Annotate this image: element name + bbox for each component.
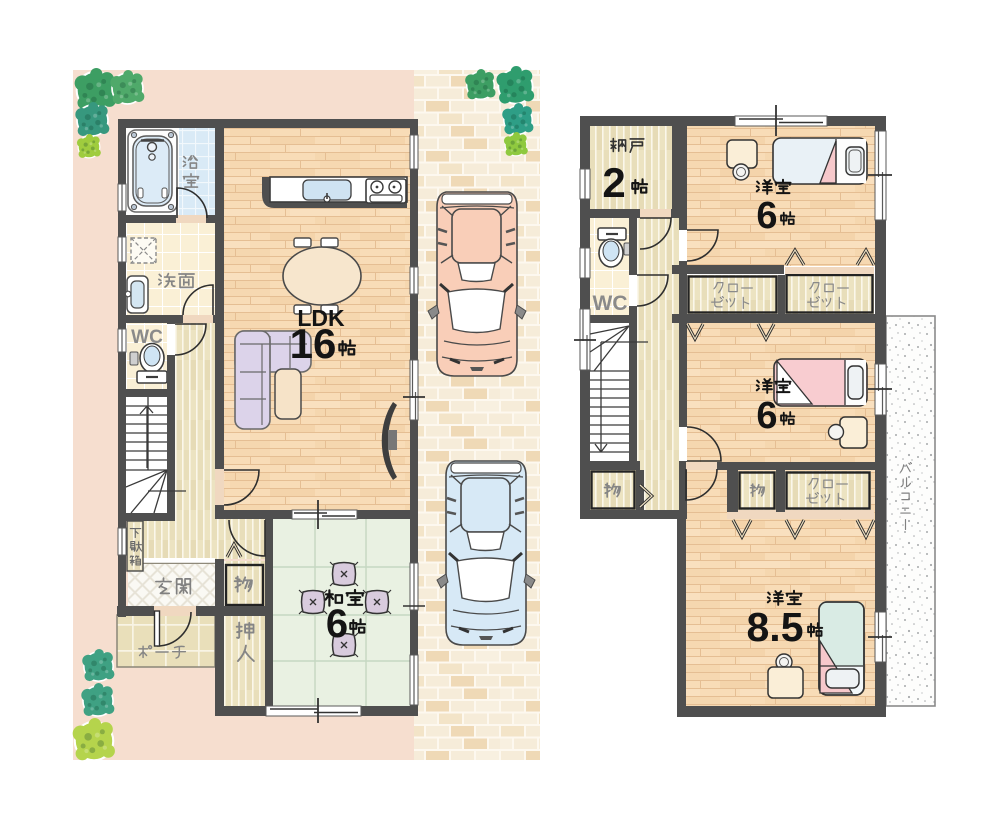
svg-text:6: 6 bbox=[326, 602, 348, 646]
svg-text:6: 6 bbox=[756, 395, 777, 437]
svg-text:2: 2 bbox=[602, 159, 625, 206]
svg-text:6: 6 bbox=[756, 195, 777, 237]
svg-text:WC: WC bbox=[593, 292, 628, 315]
svg-text:16: 16 bbox=[290, 320, 337, 367]
svg-text:8.5: 8.5 bbox=[747, 604, 804, 650]
svg-text:WC: WC bbox=[131, 327, 163, 348]
